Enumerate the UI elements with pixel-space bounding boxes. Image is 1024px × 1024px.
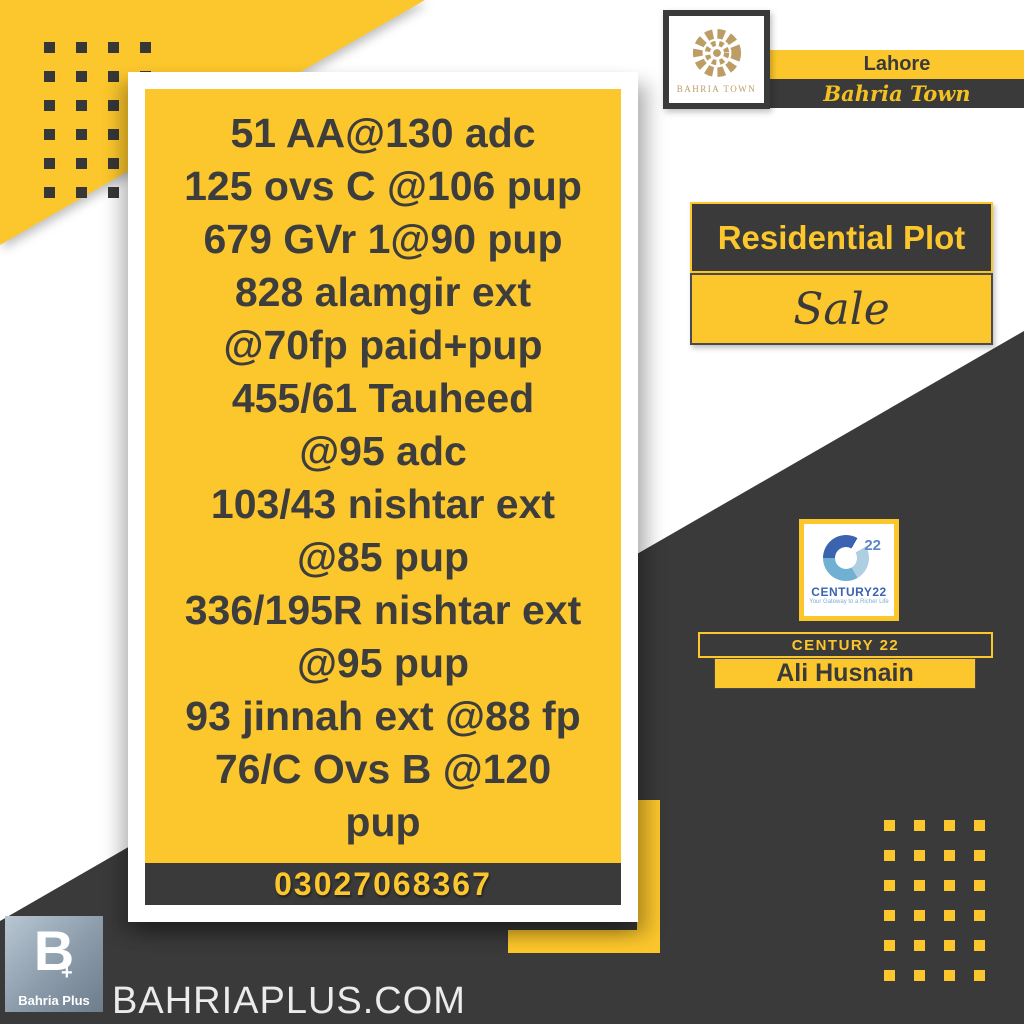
listing-line: @85 pup bbox=[297, 531, 469, 584]
listing-line: pup bbox=[345, 796, 420, 849]
agent-name-label: Ali Husnain bbox=[776, 659, 914, 688]
listing-line: 125 ovs C @106 pup bbox=[184, 160, 582, 213]
listing-line: 103/43 nishtar ext bbox=[211, 478, 555, 531]
dots-pattern-bottom-right bbox=[884, 820, 985, 981]
bahria-town-emblem-icon bbox=[689, 25, 745, 81]
agent-company-label: CENTURY 22 bbox=[792, 637, 900, 654]
bahria-town-logo-label: BAHRIA TOWN bbox=[677, 84, 756, 94]
century22-number: 22 bbox=[864, 537, 881, 554]
listing-line: 76/C Ovs B @120 bbox=[215, 743, 551, 796]
brand-bar: Bahria Town bbox=[770, 79, 1024, 108]
phone-number: 03027068367 bbox=[274, 866, 492, 903]
corner-ribbon-horizontal bbox=[508, 930, 660, 953]
listing-line: 828 alamgir ext bbox=[235, 266, 531, 319]
listing-line: 679 GVr 1@90 pup bbox=[203, 213, 562, 266]
offer-category-box: Residential Plot bbox=[690, 202, 993, 273]
agent-company-bar: CENTURY 22 bbox=[698, 632, 993, 658]
century22-tagline: Your Gateway to a Richer Life bbox=[809, 599, 889, 605]
listing-body: 51 AA@130 adc125 ovs C @106 pup679 GVr 1… bbox=[145, 89, 621, 863]
listing-line: 51 AA@130 adc bbox=[230, 107, 535, 160]
bahria-town-logo-box: BAHRIA TOWN bbox=[663, 10, 770, 109]
bahriaplus-logo-label: Bahria Plus bbox=[18, 993, 90, 1008]
website-url: BAHRIAPLUS.COM bbox=[112, 980, 466, 1023]
brand-label: Bahria Town bbox=[823, 81, 970, 106]
bahriaplus-monogram-icon: B bbox=[5, 918, 103, 984]
flyer-canvas: 51 AA@130 adc125 ovs C @106 pup679 GVr 1… bbox=[0, 0, 1024, 1024]
phone-bar: 03027068367 bbox=[145, 863, 621, 905]
listing-card: 51 AA@130 adc125 ovs C @106 pup679 GVr 1… bbox=[128, 72, 638, 922]
listing-line: 455/61 Tauheed bbox=[232, 372, 534, 425]
offer-type-label: Sale bbox=[793, 284, 890, 335]
listing-line: @95 adc bbox=[299, 425, 467, 478]
century22-logo-text: CENTURY22 bbox=[811, 585, 886, 599]
bahriaplus-logo: B + Bahria Plus bbox=[5, 916, 103, 1012]
city-label: Lahore bbox=[864, 53, 931, 76]
city-bar: Lahore bbox=[770, 50, 1024, 79]
listing-line: @70fp paid+pup bbox=[223, 319, 542, 372]
century22-donut-icon bbox=[823, 535, 869, 581]
offer-category-label: Residential Plot bbox=[718, 219, 966, 257]
listing-line: 336/195R nishtar ext bbox=[185, 584, 582, 637]
century22-logo-box: 22 CENTURY22 Your Gateway to a Richer Li… bbox=[799, 519, 899, 621]
century22-logo-icon: 22 bbox=[817, 535, 881, 583]
agent-name-bar: Ali Husnain bbox=[714, 658, 976, 689]
offer-type-box: Sale bbox=[690, 273, 993, 345]
listing-line: @95 pup bbox=[297, 637, 469, 690]
bahriaplus-plus-icon: + bbox=[61, 962, 73, 985]
listing-line: 93 jinnah ext @88 fp bbox=[185, 690, 580, 743]
